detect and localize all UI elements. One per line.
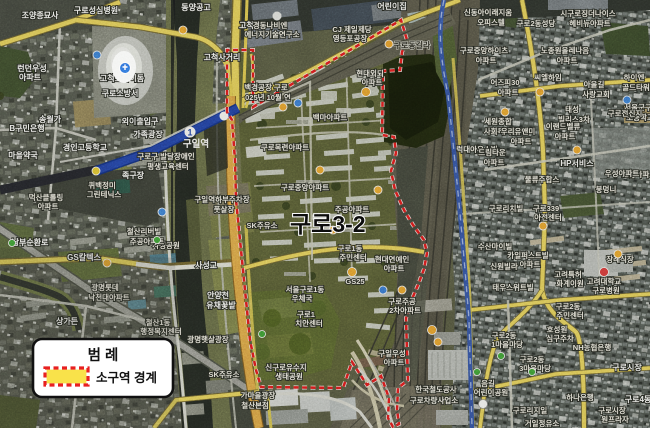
svg-text:소구역 경계: 소구역 경계 xyxy=(96,370,157,385)
svg-text:범 례: 범 례 xyxy=(88,347,119,364)
